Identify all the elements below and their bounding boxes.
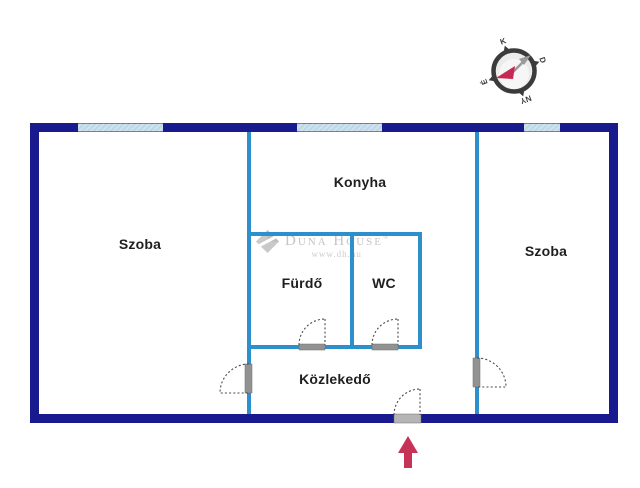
compass-label-east: K — [499, 36, 508, 47]
compass-label-south: D — [537, 56, 548, 65]
window-3 — [524, 124, 560, 132]
door-arc-entrance — [394, 389, 420, 415]
compass-rose-icon: É K D NY — [479, 36, 548, 106]
room-label-szoba-left: Szoba — [90, 236, 190, 252]
entrance-arrow-icon — [398, 436, 418, 468]
door-opening-furdo — [299, 344, 325, 350]
window-1 — [78, 124, 163, 132]
door-arc-furdo — [299, 319, 325, 345]
compass-label-west: NY — [518, 93, 532, 105]
room-label-kozlekedo: Közlekedő — [285, 371, 385, 387]
door-opening-szoba-right — [473, 358, 480, 387]
door-arcs — [220, 319, 506, 415]
room-label-konyha: Konyha — [310, 174, 410, 190]
compass-label-north: É — [479, 77, 490, 86]
room-label-wc: WC — [334, 275, 434, 291]
floorplan-canvas: Duna House® www.dh.hu — [0, 0, 640, 488]
door-opening-entrance — [394, 414, 421, 423]
door-opening-wc — [372, 344, 398, 350]
window-2 — [297, 124, 382, 132]
room-label-szoba-right: Szoba — [496, 243, 596, 259]
door-arc-szoba-left — [220, 364, 249, 393]
door-arc-wc — [372, 319, 398, 345]
door-arc-szoba-right — [477, 358, 506, 387]
door-opening-szoba-left — [245, 364, 252, 393]
